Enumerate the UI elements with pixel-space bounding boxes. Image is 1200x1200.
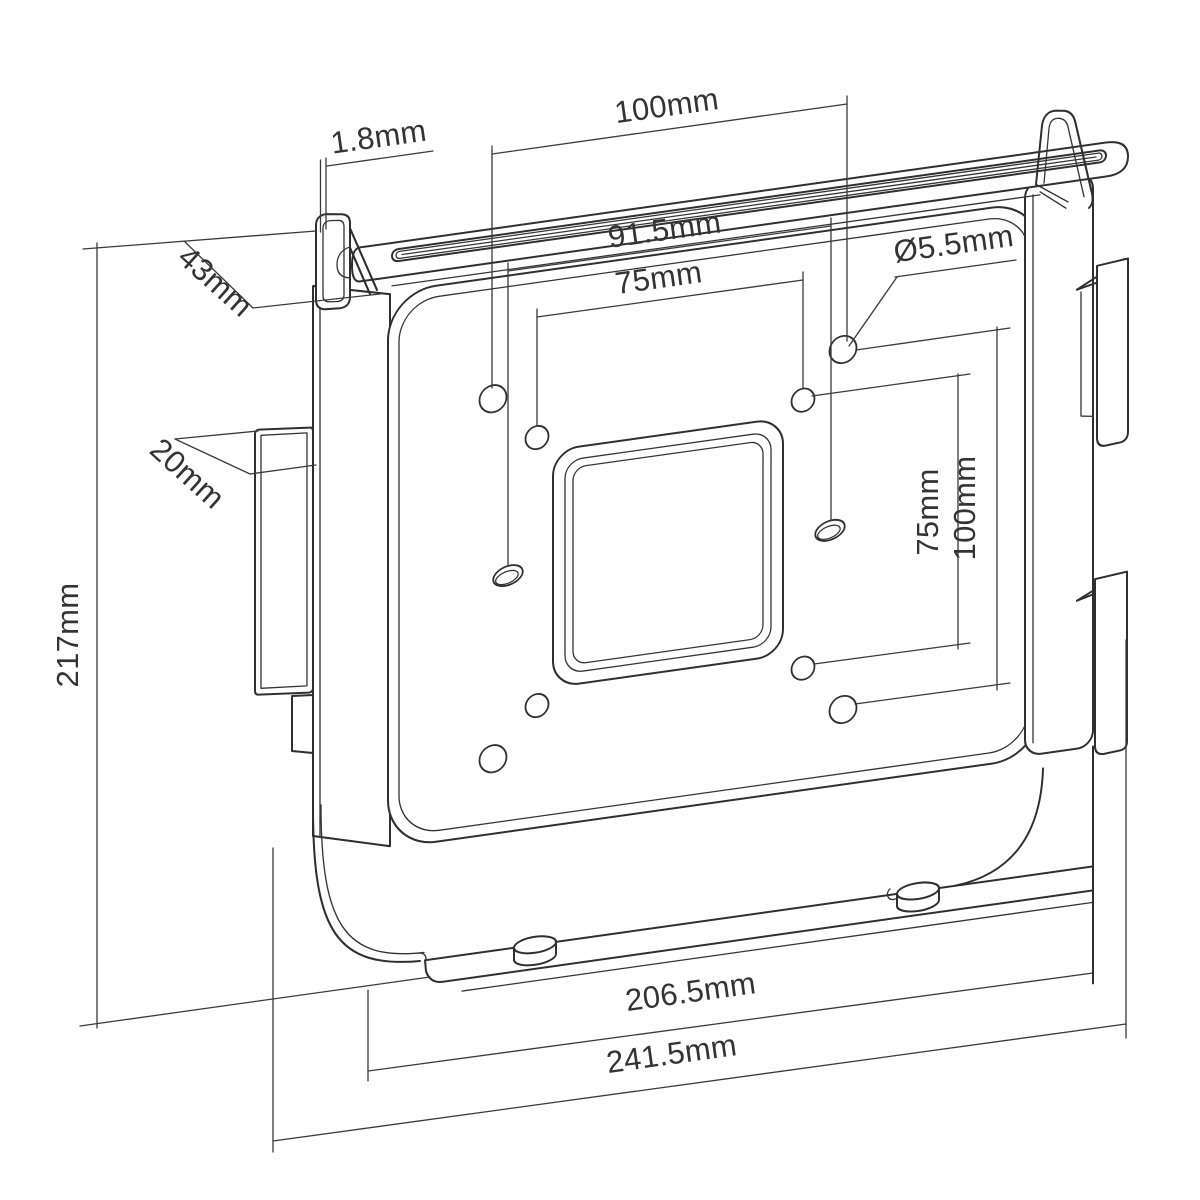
right-upper-clamp-bar: [1097, 258, 1128, 446]
dim-inner-width-label: 206.5mm: [623, 965, 758, 1018]
right-lower-clamp-bar: [1095, 572, 1127, 755]
dim-top-clamp-depth-label: 43mm: [171, 239, 259, 323]
bracket-drawing: 1.8mm 100mm 91.5mm 75mm Ø5.5mm: [0, 0, 1200, 1200]
technical-drawing-page: 1.8mm 100mm 91.5mm 75mm Ø5.5mm: [0, 0, 1200, 1200]
bottom-right-curve: [955, 768, 1043, 885]
dim-vesa100-vertical-label: 100mm: [947, 456, 982, 561]
center-boss: [553, 418, 783, 687]
dim-side-clamp-depth-label: 20mm: [143, 431, 231, 515]
dim-overall-width-label: 241.5mm: [604, 1027, 739, 1080]
right-side-panel: [1025, 172, 1093, 756]
left-clamp-flange: [292, 693, 313, 756]
dim-inner-width: 206.5mm: [368, 965, 1093, 1081]
dim-vesa100-horizontal-label: 100mm: [612, 81, 721, 130]
dim-vesa75-vertical-label: 75mm: [910, 468, 945, 555]
left-side-wall: [313, 275, 390, 857]
bottom-bar: [425, 866, 1093, 984]
left-clamp-arm: [255, 422, 313, 700]
dim-overall-height-label: 217mm: [50, 583, 85, 688]
